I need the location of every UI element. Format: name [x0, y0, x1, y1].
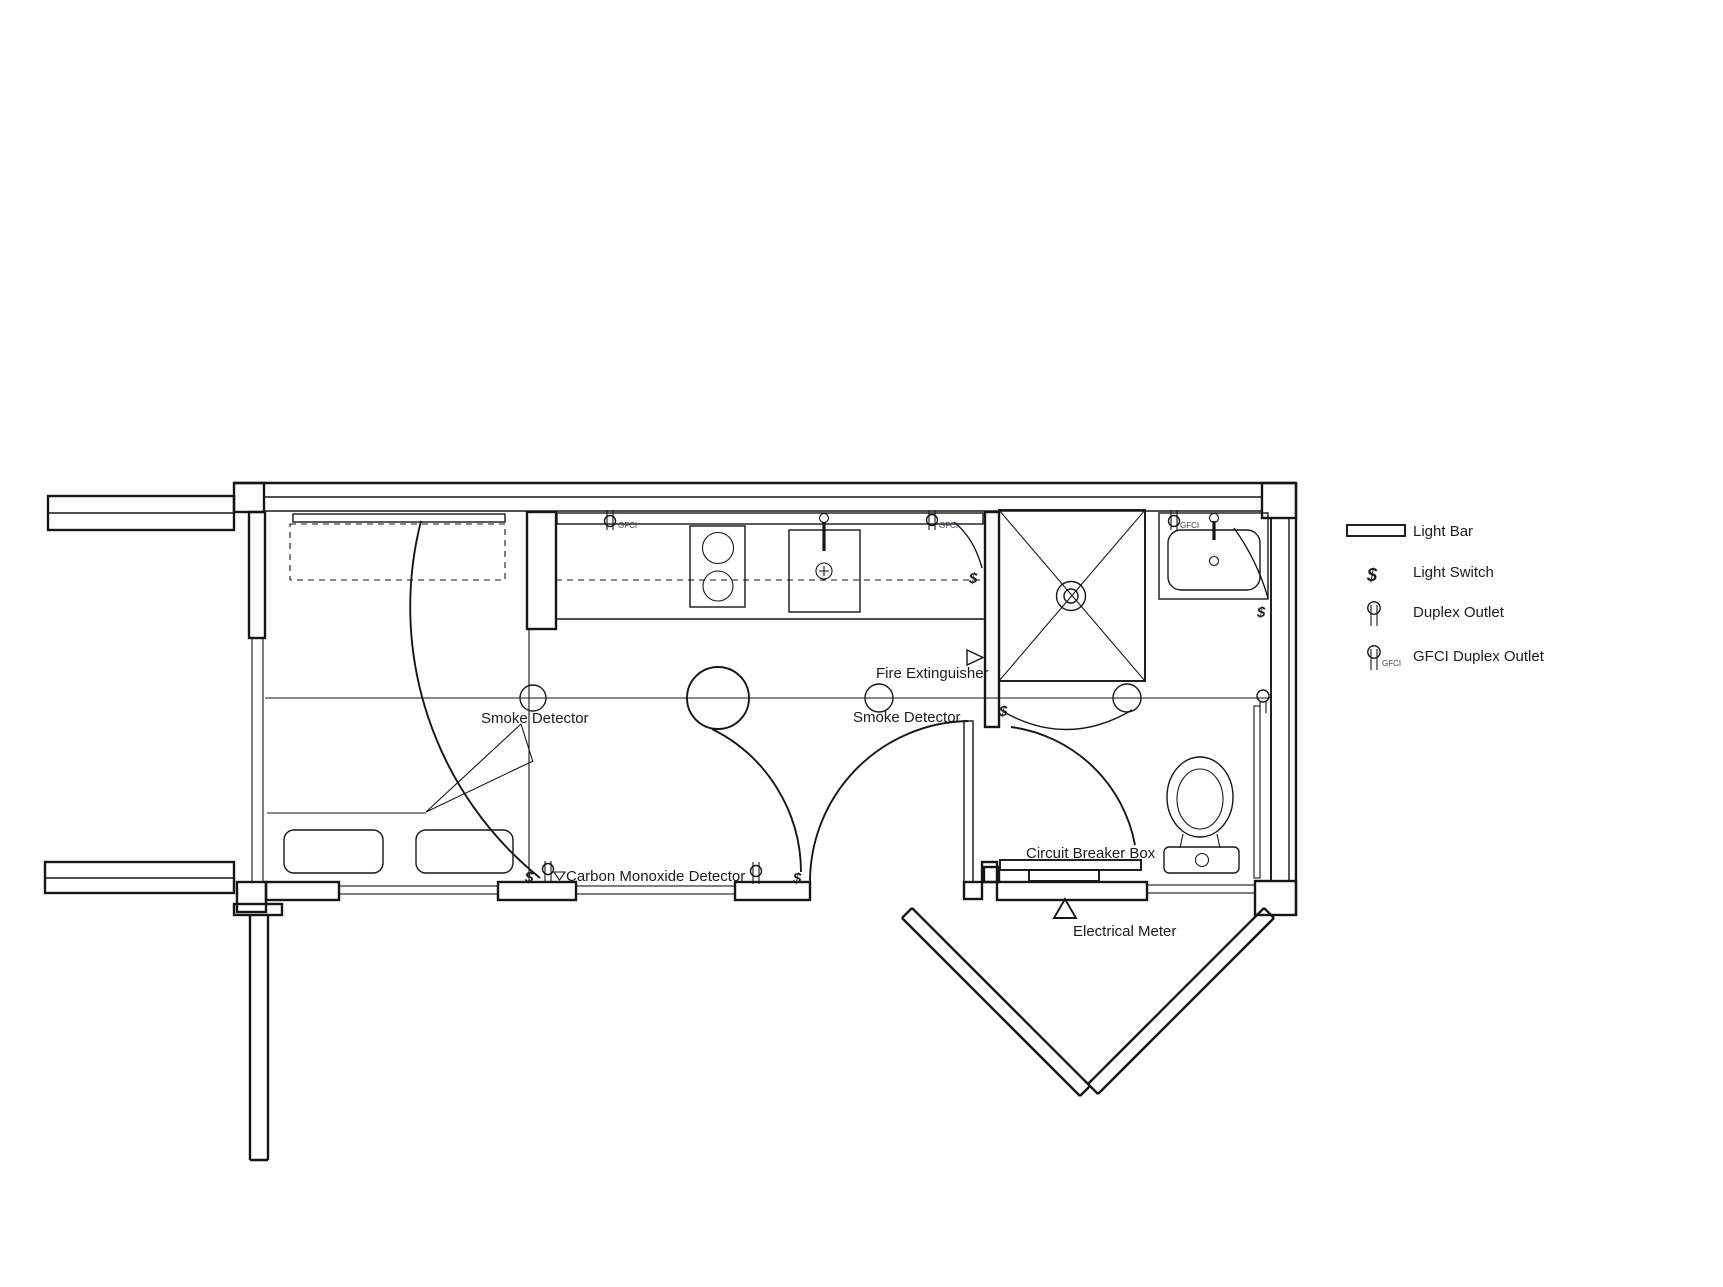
page-background [0, 0, 1723, 1287]
light-switch-icon: $ [1256, 604, 1266, 621]
legend-label-light-switch: Light Switch [1413, 564, 1494, 581]
circuit-breaker-box-label: Circuit Breaker Box [1026, 845, 1156, 862]
smoke-detector-label: Smoke Detector [853, 709, 961, 726]
electrical-meter-label: Electrical Meter [1073, 923, 1176, 940]
light-switch-icon: $ [524, 869, 534, 886]
smoke-detector-label: Smoke Detector [481, 710, 589, 727]
gfci-tag: GFCI [618, 521, 637, 530]
carbon-monoxide-detector-label: Carbon Monoxide Detector [566, 868, 745, 885]
light-switch-icon: $ [998, 703, 1008, 720]
gfci-tag: GFCI [1382, 659, 1401, 668]
light-switch-icon: $ [968, 570, 978, 587]
legend-label-gfci-duplex-outlet: GFCI Duplex Outlet [1413, 648, 1545, 665]
legend-label-duplex-outlet: Duplex Outlet [1413, 604, 1505, 621]
legend-label-light-bar: Light Bar [1413, 523, 1473, 540]
fire-extinguisher-label: Fire Extinguisher [876, 665, 989, 682]
gfci-tag: GFCI [1180, 521, 1199, 530]
light-switch-icon: $ [792, 870, 802, 887]
light-switch-icon: $ [1366, 565, 1378, 585]
floor-plan-canvas: $ $ $ $ $ Smoke Detector Smoke Detector … [0, 0, 1723, 1287]
gfci-tag: GFCI [939, 521, 958, 530]
